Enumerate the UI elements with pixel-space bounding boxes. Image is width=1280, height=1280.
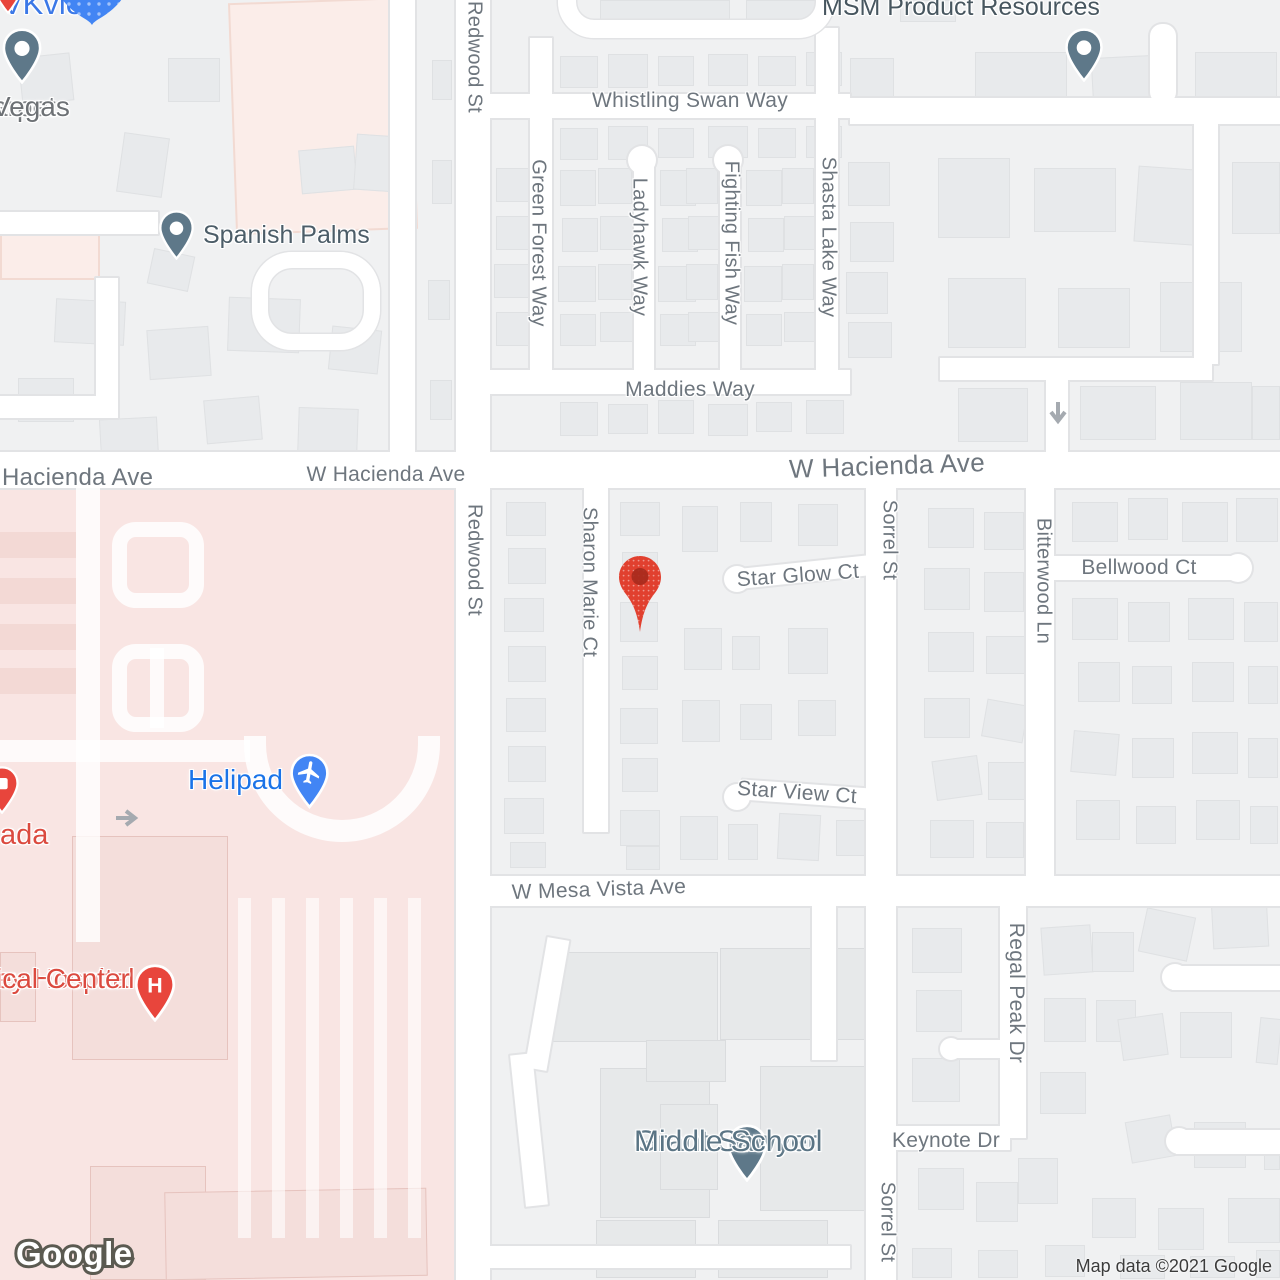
selected-location-marker[interactable] — [617, 553, 663, 635]
map-attribution: Map data ©2021 Google — [1076, 1256, 1272, 1277]
map-canvas[interactable]: Redwood StRedwood StWhistling Swan WayGr… — [0, 0, 1280, 1280]
google-logo[interactable]: Google — [12, 1232, 152, 1276]
marker-layer — [0, 0, 1280, 1280]
blue-map-pin-cutoff[interactable] — [46, 0, 138, 28]
google-logo-text: Google — [16, 1235, 133, 1272]
